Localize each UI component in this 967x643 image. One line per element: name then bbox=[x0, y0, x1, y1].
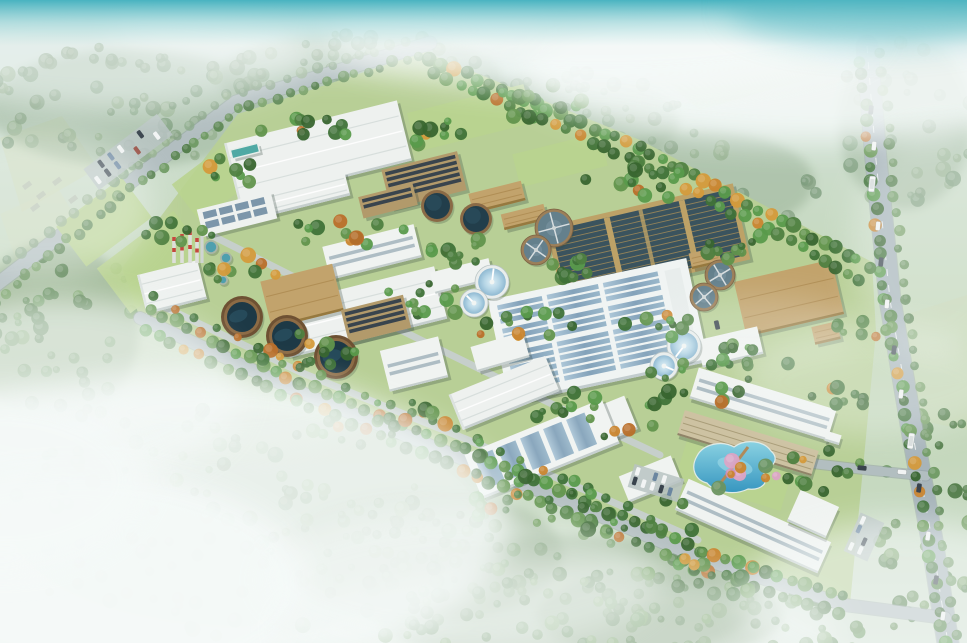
tree-highlight bbox=[481, 318, 488, 325]
tree-highlight bbox=[540, 105, 548, 113]
tree-highlight bbox=[199, 112, 203, 116]
tree-highlight bbox=[427, 407, 434, 414]
tree-highlight bbox=[204, 161, 211, 168]
tree-highlight bbox=[559, 475, 564, 480]
tree-highlight bbox=[540, 467, 545, 472]
tree-highlight bbox=[537, 114, 543, 120]
tree-highlight bbox=[845, 159, 852, 166]
tree-highlight bbox=[819, 487, 825, 493]
tree-highlight bbox=[551, 120, 556, 125]
tree-highlight bbox=[576, 131, 582, 137]
tree-highlight bbox=[453, 425, 457, 429]
tree-highlight bbox=[172, 152, 177, 157]
tree-highlight bbox=[150, 292, 155, 297]
tree-highlight bbox=[323, 116, 328, 121]
tree-highlight bbox=[675, 168, 681, 174]
tree-highlight bbox=[441, 294, 448, 301]
tree-highlight bbox=[96, 134, 100, 138]
tree-highlight bbox=[226, 114, 230, 118]
tree-highlight bbox=[567, 402, 573, 408]
chimney-band bbox=[172, 248, 176, 252]
tree-highlight bbox=[373, 219, 379, 225]
tree-highlight bbox=[584, 484, 589, 489]
tree-highlight bbox=[183, 145, 188, 150]
tree-highlight bbox=[736, 571, 744, 579]
tree-highlight bbox=[621, 136, 627, 142]
tree-highlight bbox=[615, 178, 622, 185]
tree-highlight bbox=[272, 367, 278, 373]
car-body bbox=[916, 483, 922, 493]
tree-highlight bbox=[683, 539, 690, 546]
car bbox=[857, 465, 866, 471]
tree-highlight bbox=[524, 91, 530, 97]
tree-highlight bbox=[639, 190, 646, 197]
tree-highlight bbox=[456, 129, 462, 135]
tree-highlight bbox=[303, 116, 310, 123]
tree-highlight bbox=[925, 433, 929, 437]
tree-highlight bbox=[166, 218, 172, 224]
tree-highlight bbox=[246, 351, 253, 358]
tree-highlight bbox=[629, 164, 637, 172]
tree-highlight bbox=[498, 481, 505, 488]
tree-highlight bbox=[508, 110, 516, 118]
tree-highlight bbox=[426, 281, 430, 285]
tree-highlight bbox=[910, 458, 917, 465]
tree-highlight bbox=[473, 234, 481, 242]
tree-highlight bbox=[749, 239, 753, 243]
tree-highlight bbox=[589, 138, 596, 145]
tree-highlight bbox=[548, 259, 554, 265]
tree-highlight bbox=[681, 389, 685, 393]
tree-highlight bbox=[351, 70, 355, 74]
tree-highlight bbox=[820, 237, 827, 244]
tree-highlight bbox=[215, 122, 220, 127]
water bbox=[222, 254, 230, 262]
tree-highlight bbox=[245, 159, 251, 165]
tree-highlight bbox=[411, 135, 418, 142]
tree-highlight bbox=[645, 543, 650, 548]
tree-highlight bbox=[666, 142, 673, 149]
tree-highlight bbox=[619, 511, 624, 516]
tree-highlight bbox=[259, 99, 264, 104]
tree-highlight bbox=[679, 367, 683, 371]
tree-highlight bbox=[659, 155, 664, 160]
tree-highlight bbox=[663, 385, 671, 393]
tree-highlight bbox=[936, 442, 940, 446]
tree-highlight bbox=[825, 446, 831, 452]
tree-highlight bbox=[830, 241, 837, 248]
tree-highlight bbox=[307, 358, 312, 363]
tree-highlight bbox=[590, 392, 597, 399]
tree-highlight bbox=[427, 246, 433, 252]
tree-highlight bbox=[634, 186, 640, 192]
tree-highlight bbox=[691, 150, 696, 155]
sheen bbox=[465, 208, 481, 224]
tree-highlight bbox=[570, 273, 575, 278]
tree-highlight bbox=[385, 288, 389, 292]
treatment-plant-aerial-scene bbox=[0, 0, 967, 643]
tree-highlight bbox=[445, 118, 449, 122]
tree-highlight bbox=[499, 89, 504, 94]
tree-highlight bbox=[245, 101, 251, 107]
tree-highlight bbox=[609, 149, 615, 155]
tree-highlight bbox=[335, 216, 342, 223]
tree-highlight bbox=[212, 102, 216, 106]
tree-highlight bbox=[728, 471, 732, 475]
tree-highlight bbox=[698, 175, 706, 183]
tree-highlight bbox=[320, 348, 325, 353]
tree-highlight bbox=[607, 528, 611, 532]
tree-highlight bbox=[624, 424, 631, 431]
tree-highlight bbox=[562, 507, 569, 514]
tree-highlight bbox=[330, 127, 337, 134]
tree-highlight bbox=[742, 201, 748, 207]
tree-highlight bbox=[586, 515, 593, 522]
tree-highlight bbox=[452, 285, 456, 289]
tree-highlight bbox=[802, 178, 806, 182]
tree-highlight bbox=[523, 111, 531, 119]
tree-highlight bbox=[478, 88, 485, 95]
tree-highlight bbox=[540, 409, 544, 413]
tree-highlight bbox=[406, 301, 410, 305]
tree-highlight bbox=[671, 533, 677, 539]
chimney-band bbox=[195, 238, 199, 242]
tree-highlight bbox=[16, 114, 22, 120]
tree-highlight bbox=[305, 225, 309, 229]
tree-highlight bbox=[44, 289, 50, 295]
tree-highlight bbox=[520, 470, 528, 478]
tree-highlight bbox=[472, 258, 476, 262]
tree-highlight bbox=[448, 252, 454, 258]
tree-highlight bbox=[734, 387, 740, 393]
tree-highlight bbox=[274, 95, 279, 100]
hub bbox=[472, 301, 477, 306]
tree-highlight bbox=[645, 164, 650, 169]
tree-highlight bbox=[541, 477, 548, 484]
tree-highlight bbox=[603, 508, 610, 515]
tree-highlight bbox=[732, 246, 738, 252]
tree-highlight bbox=[375, 400, 379, 404]
layer-sky-band bbox=[0, 0, 967, 46]
tree-highlight bbox=[949, 485, 957, 493]
tree-highlight bbox=[933, 486, 938, 491]
hub bbox=[702, 295, 706, 299]
tree-highlight bbox=[726, 209, 732, 215]
tree-highlight bbox=[172, 306, 176, 310]
tree-highlight bbox=[400, 225, 405, 230]
tree-highlight bbox=[287, 89, 292, 94]
tree-highlight bbox=[632, 538, 637, 543]
tree-highlight bbox=[522, 307, 528, 313]
tree-highlight bbox=[417, 289, 422, 294]
tree-highlight bbox=[575, 116, 582, 123]
car bbox=[897, 469, 906, 475]
tree-highlight bbox=[216, 154, 222, 160]
tree-highlight bbox=[441, 123, 446, 128]
tree-highlight bbox=[694, 188, 700, 194]
tree-highlight bbox=[244, 176, 251, 183]
tree-highlight bbox=[258, 354, 265, 361]
tree-highlight bbox=[843, 251, 850, 258]
tree-highlight bbox=[587, 489, 593, 495]
tree-highlight bbox=[478, 331, 482, 335]
tree-highlight bbox=[611, 519, 615, 523]
tree-highlight bbox=[706, 240, 711, 245]
tree-highlight bbox=[517, 457, 521, 461]
tree-highlight bbox=[505, 101, 511, 107]
tree-highlight bbox=[599, 141, 606, 148]
tree-highlight bbox=[800, 457, 804, 461]
tree-highlight bbox=[500, 462, 506, 468]
tree-highlight bbox=[648, 421, 654, 427]
tree-highlight bbox=[337, 120, 343, 126]
tree-highlight bbox=[679, 359, 685, 365]
tree-highlight bbox=[844, 270, 849, 275]
tree-highlight bbox=[412, 307, 417, 312]
chimney-band bbox=[172, 237, 176, 241]
tree-highlight bbox=[569, 387, 576, 394]
tree-highlight bbox=[160, 164, 165, 169]
tree-highlight bbox=[767, 209, 773, 215]
tree-highlight bbox=[611, 132, 616, 137]
tree-highlight bbox=[342, 348, 349, 355]
tree-highlight bbox=[277, 353, 281, 357]
tree-highlight bbox=[754, 207, 759, 212]
tree-highlight bbox=[272, 271, 277, 276]
tree-highlight bbox=[215, 276, 219, 280]
tree-highlight bbox=[190, 139, 195, 144]
tree-highlight bbox=[657, 525, 663, 531]
tree-highlight bbox=[820, 256, 827, 263]
tree-highlight bbox=[191, 314, 196, 319]
tree-highlight bbox=[663, 375, 667, 379]
tree-highlight bbox=[387, 401, 392, 406]
tree-highlight bbox=[414, 122, 422, 130]
tree-highlight bbox=[732, 194, 739, 201]
tree-highlight bbox=[410, 400, 414, 404]
tree-highlight bbox=[321, 338, 329, 346]
tree-highlight bbox=[591, 125, 598, 132]
tree-highlight bbox=[620, 318, 627, 325]
tree-highlight bbox=[514, 90, 522, 98]
tree-highlight bbox=[573, 514, 581, 522]
tree-highlight bbox=[591, 505, 595, 509]
tree-highlight bbox=[265, 344, 272, 351]
tree-highlight bbox=[218, 341, 225, 348]
tree-highlight bbox=[257, 259, 263, 265]
tree-highlight bbox=[191, 152, 196, 157]
tree-highlight bbox=[235, 334, 239, 338]
tree-highlight bbox=[601, 433, 605, 437]
tree-highlight bbox=[936, 507, 940, 511]
water bbox=[206, 242, 216, 252]
tree-highlight bbox=[807, 234, 814, 241]
tree-highlight bbox=[449, 306, 457, 314]
tree-highlight bbox=[721, 555, 726, 560]
tree-highlight bbox=[811, 188, 817, 194]
tree-highlight bbox=[708, 550, 715, 557]
tree-highlight bbox=[645, 150, 651, 156]
tree-highlight bbox=[866, 163, 871, 168]
tree-highlight bbox=[235, 106, 239, 110]
tree-highlight bbox=[624, 502, 629, 507]
tree-highlight bbox=[174, 133, 178, 137]
tree-highlight bbox=[502, 312, 508, 318]
tree-highlight bbox=[474, 450, 481, 457]
aerial-rendering-stage bbox=[0, 0, 967, 643]
tree-highlight bbox=[601, 130, 607, 136]
tree-highlight bbox=[186, 122, 191, 127]
tree-highlight bbox=[716, 397, 723, 404]
tree-highlight bbox=[690, 560, 696, 566]
tree-highlight bbox=[219, 264, 226, 271]
tree-highlight bbox=[476, 439, 480, 443]
tree-highlight bbox=[255, 344, 260, 349]
tree-highlight bbox=[674, 560, 680, 566]
car-body bbox=[897, 469, 906, 475]
tree-highlight bbox=[763, 223, 770, 230]
tree-highlight bbox=[183, 226, 188, 231]
tree-highlight bbox=[524, 491, 529, 496]
tree-highlight bbox=[469, 87, 474, 92]
tree-highlight bbox=[611, 427, 616, 432]
tree-highlight bbox=[801, 230, 807, 236]
hub bbox=[534, 248, 538, 252]
tree-highlight bbox=[339, 72, 345, 78]
tree-highlight bbox=[773, 472, 777, 476]
tree-highlight bbox=[919, 502, 925, 508]
tree-highlight bbox=[9, 122, 17, 130]
tree-highlight bbox=[664, 192, 670, 198]
tree-highlight bbox=[302, 238, 307, 243]
tree-highlight bbox=[681, 554, 687, 560]
car-body bbox=[857, 465, 866, 471]
tree-highlight bbox=[647, 368, 653, 374]
tree-highlight bbox=[570, 476, 576, 482]
tree-highlight bbox=[257, 126, 263, 132]
tree-highlight bbox=[250, 266, 257, 273]
tree-highlight bbox=[800, 478, 807, 485]
tree-highlight bbox=[720, 187, 726, 193]
tree-highlight bbox=[513, 465, 519, 471]
tree-highlight bbox=[587, 415, 592, 420]
tree-highlight bbox=[515, 491, 519, 495]
tree-highlight bbox=[641, 313, 648, 320]
tree-highlight bbox=[279, 361, 283, 365]
tree-highlight bbox=[554, 485, 561, 492]
tree-highlight bbox=[565, 115, 572, 122]
tree-highlight bbox=[754, 219, 760, 225]
tree-highlight bbox=[630, 517, 636, 523]
tree-highlight bbox=[439, 418, 447, 426]
tree-highlight bbox=[929, 468, 935, 474]
tree-highlight bbox=[658, 167, 665, 174]
tree-highlight bbox=[562, 125, 567, 130]
tree-highlight bbox=[408, 409, 413, 414]
tree-highlight bbox=[486, 457, 493, 464]
tree-highlight bbox=[563, 398, 567, 402]
tree-highlight bbox=[760, 460, 767, 467]
tree-highlight bbox=[740, 210, 747, 217]
chimney-band bbox=[188, 245, 192, 249]
tree-highlight bbox=[755, 230, 763, 238]
tree-highlight bbox=[442, 244, 450, 252]
tree-highlight bbox=[582, 175, 587, 180]
tree-highlight bbox=[686, 524, 693, 531]
tree-highlight bbox=[830, 262, 837, 269]
tree-highlight bbox=[212, 173, 216, 177]
tree-highlight bbox=[232, 350, 237, 355]
tree-highlight bbox=[209, 232, 213, 236]
hub bbox=[552, 226, 556, 230]
tree-highlight bbox=[650, 171, 655, 176]
tree-highlight bbox=[441, 131, 446, 136]
mist-cloud bbox=[650, 296, 870, 368]
tree-highlight bbox=[552, 403, 558, 409]
tree-highlight bbox=[312, 83, 316, 87]
tree-highlight bbox=[723, 253, 730, 260]
tree-highlight bbox=[568, 322, 573, 327]
tree-highlight bbox=[720, 152, 724, 156]
tree-highlight bbox=[317, 371, 322, 376]
tree-highlight bbox=[300, 87, 305, 92]
tree-highlight bbox=[547, 504, 553, 510]
tree-highlight bbox=[540, 308, 547, 315]
car-body bbox=[871, 141, 877, 150]
tree-highlight bbox=[545, 330, 551, 336]
tree-highlight bbox=[297, 364, 302, 369]
hub bbox=[718, 273, 722, 277]
tree-highlight bbox=[554, 308, 560, 314]
tree-highlight bbox=[205, 264, 211, 270]
hub bbox=[490, 280, 495, 285]
tree-highlight bbox=[341, 129, 347, 135]
tree-highlight bbox=[649, 398, 656, 405]
tree-highlight bbox=[678, 499, 684, 505]
tree-highlight bbox=[198, 226, 204, 232]
tree-highlight bbox=[787, 219, 795, 227]
tree-highlight bbox=[856, 459, 861, 464]
tree-highlight bbox=[700, 549, 704, 553]
tree-highlight bbox=[778, 216, 784, 222]
tree-highlight bbox=[833, 466, 839, 472]
tree-highlight bbox=[2, 290, 7, 295]
tree-highlight bbox=[799, 243, 804, 248]
tree-highlight bbox=[497, 448, 502, 453]
tree-highlight bbox=[14, 281, 18, 285]
tree-highlight bbox=[583, 269, 588, 274]
tree-highlight bbox=[569, 491, 573, 495]
tree-highlight bbox=[472, 242, 476, 246]
tree-highlight bbox=[342, 384, 347, 389]
tree-highlight bbox=[546, 496, 550, 500]
tree-highlight bbox=[772, 229, 779, 236]
tree-highlight bbox=[156, 231, 164, 239]
tree-highlight bbox=[513, 328, 520, 335]
tree-highlight bbox=[351, 348, 356, 353]
tree-highlight bbox=[739, 243, 743, 247]
tree-highlight bbox=[579, 503, 585, 509]
tree-highlight bbox=[295, 220, 300, 225]
sheen bbox=[426, 195, 442, 211]
tree-highlight bbox=[707, 197, 712, 202]
tree-highlight bbox=[787, 236, 793, 242]
tree-highlight bbox=[536, 497, 542, 503]
tree-highlight bbox=[362, 393, 366, 397]
tree-highlight bbox=[148, 171, 152, 175]
tree-highlight bbox=[505, 472, 510, 477]
car bbox=[871, 141, 877, 150]
